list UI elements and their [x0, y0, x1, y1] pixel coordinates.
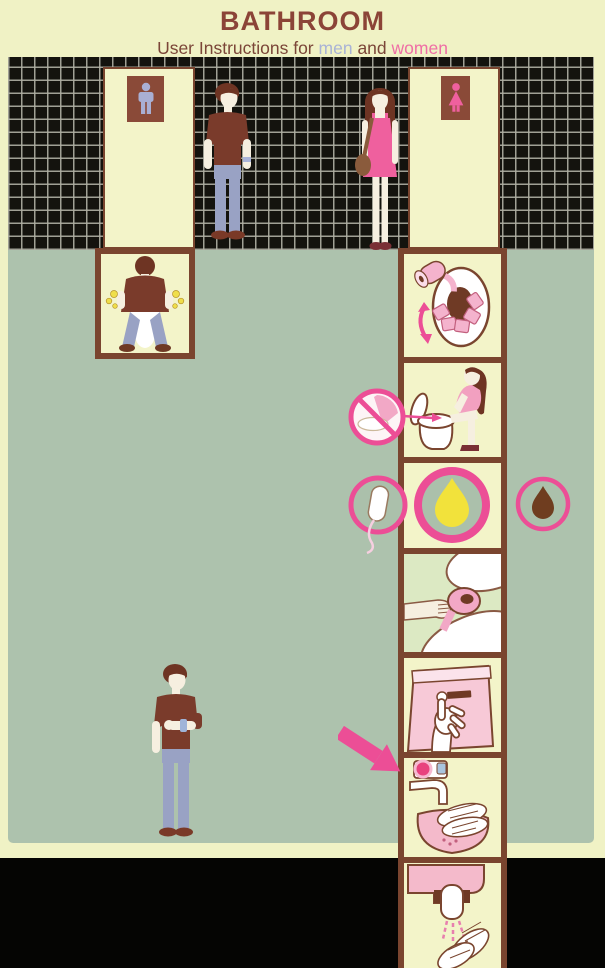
step-cover-seat-panel [404, 254, 501, 363]
dry-hands-icon [404, 863, 501, 968]
subtitle-prefix: User Instructions for [157, 38, 314, 58]
subtitle-women-word: women [392, 38, 448, 58]
female-pictogram-icon [445, 82, 467, 114]
poop-drop-icon [514, 475, 572, 533]
subtitle-and-word: and [357, 38, 386, 58]
step-urinate-only-panel [404, 463, 501, 554]
subtitle-men-word: men [319, 38, 353, 58]
step-wipe-panel [404, 554, 501, 658]
bathroom-instructions-poster: BATHROOM User Instructions for men and w… [0, 0, 605, 968]
tampon-icon [346, 473, 410, 559]
tiled-wall [8, 57, 594, 250]
womens-door-sign [441, 76, 470, 120]
step-dry-hands-panel [404, 863, 501, 968]
man-checking-watch-icon [138, 663, 214, 841]
men-step-urinate-panel [95, 248, 195, 359]
soap-pointer-arrow-icon [338, 720, 426, 788]
mens-door-sign [127, 76, 164, 122]
women-steps-strip [398, 248, 507, 968]
woman-at-womens-door-icon [350, 85, 410, 253]
mens-door [103, 67, 195, 249]
man-waiting-at-mens-door-icon [196, 83, 260, 243]
womens-door [408, 67, 500, 249]
wipe-with-paper-icon [404, 554, 501, 652]
bottom-black-band [0, 858, 605, 968]
urinate-standing-icon [101, 254, 189, 353]
male-pictogram-icon [134, 82, 158, 116]
cover-seat-with-paper-icon [404, 254, 501, 357]
header: BATHROOM User Instructions for men and w… [0, 2, 605, 59]
urine-drop-icon [404, 463, 501, 548]
page-subtitle: User Instructions for men and women [0, 38, 605, 59]
no-seat-contact-icon [347, 387, 443, 447]
page-title: BATHROOM [0, 6, 605, 37]
